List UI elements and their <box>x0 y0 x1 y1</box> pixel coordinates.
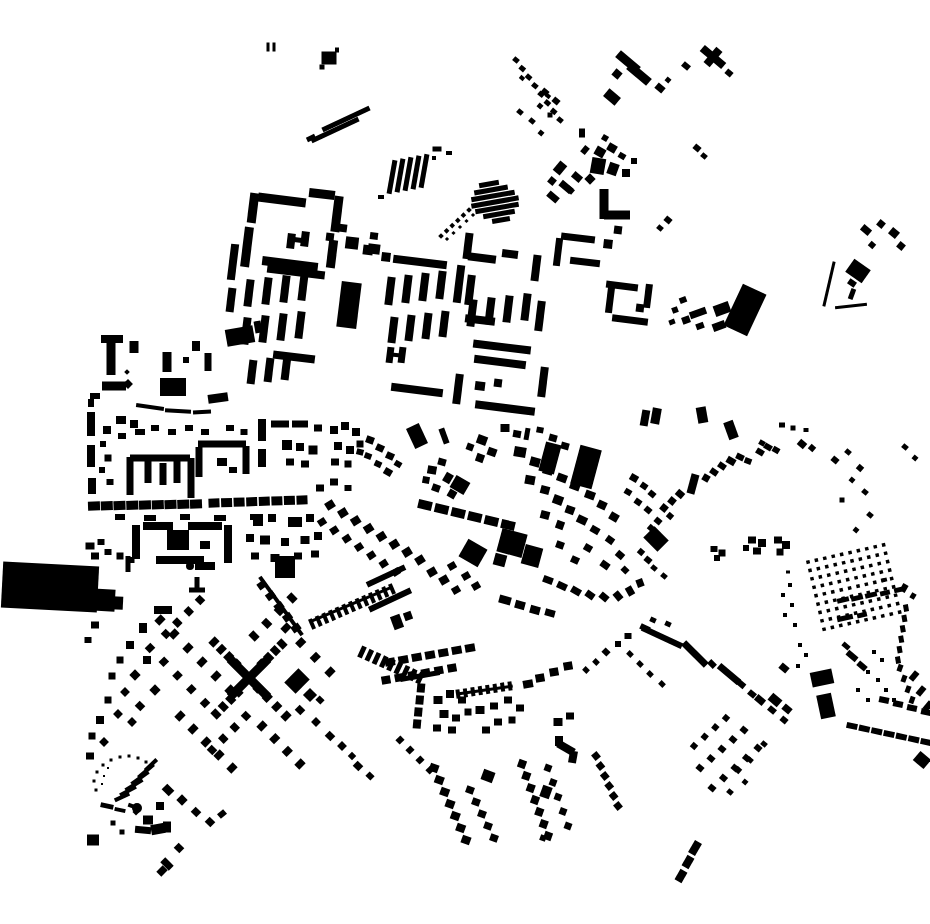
building-footprint <box>465 709 472 716</box>
building-footprint <box>282 440 292 450</box>
building-footprint <box>154 606 172 614</box>
building-footprint <box>364 452 373 460</box>
building-footprint <box>741 778 748 785</box>
building-footprint <box>690 742 698 750</box>
building-footprint <box>190 499 202 508</box>
building-footprint <box>460 835 471 846</box>
building-footprint <box>345 461 352 468</box>
building-footprint <box>620 565 629 574</box>
building-footprint <box>129 669 140 680</box>
building-footprint <box>306 514 314 522</box>
building-footprint <box>452 715 460 722</box>
building-footprint <box>107 479 114 485</box>
building-footprint <box>844 448 852 456</box>
building-footprint <box>848 476 855 483</box>
building-footprint <box>188 522 222 530</box>
building-footprint <box>537 129 544 136</box>
building-footprint <box>816 693 836 720</box>
building-footprint-round <box>186 562 194 570</box>
building-footprint <box>707 659 717 669</box>
building-footprint <box>415 695 424 705</box>
building-footprint <box>281 538 289 546</box>
building-footprint <box>243 446 250 474</box>
building-footprint <box>195 595 206 606</box>
building-footprint <box>679 296 688 304</box>
building-footprint <box>475 453 485 463</box>
building-footprint <box>163 822 171 833</box>
building-footprint <box>357 646 367 659</box>
building-footprint <box>398 655 409 665</box>
building-footprint <box>878 696 889 704</box>
building-footprint <box>639 482 648 491</box>
building-footprint <box>596 499 608 510</box>
building-footprint <box>877 561 881 565</box>
building-footprint <box>415 755 424 764</box>
building-footprint <box>139 623 147 633</box>
building-footprint <box>189 588 205 593</box>
building-footprint <box>113 501 125 510</box>
building-footprint <box>435 271 446 300</box>
building-footprint <box>324 499 336 511</box>
building-footprint <box>286 459 294 466</box>
building-footprint <box>309 446 318 455</box>
building-footprint <box>317 517 328 527</box>
building-footprint <box>712 320 727 332</box>
building-footprint <box>711 723 719 731</box>
building-footprint <box>101 783 103 785</box>
building-footprint <box>446 151 452 155</box>
building-footprint <box>196 447 203 477</box>
building-footprint <box>612 590 623 601</box>
building-footprint <box>709 467 719 477</box>
building-footprint <box>210 670 221 681</box>
building-footprint <box>900 675 907 683</box>
building-footprint <box>124 369 130 375</box>
building-footprint <box>861 488 869 496</box>
building-footprint <box>309 188 336 200</box>
building-footprint <box>826 608 830 612</box>
building-footprint <box>873 545 877 549</box>
building-footprint <box>711 546 718 552</box>
building-footprint <box>135 429 145 435</box>
building-footprint <box>520 293 531 321</box>
building-footprint <box>571 171 583 183</box>
building-footprint <box>536 426 544 433</box>
building-footprint <box>858 557 862 561</box>
building-footprint <box>466 443 475 452</box>
building-footprint <box>601 134 609 142</box>
building-footprint <box>848 586 852 590</box>
building-footprint <box>413 719 422 729</box>
building-footprint <box>445 237 449 241</box>
building-footprint <box>860 565 864 569</box>
building-footprint <box>485 685 490 694</box>
building-footprint <box>516 705 524 712</box>
building-footprint <box>301 536 310 544</box>
building-footprint <box>450 811 461 822</box>
building-footprint <box>296 443 304 451</box>
building-footprint <box>348 752 356 760</box>
building-footprint <box>687 473 700 494</box>
building-footprint <box>431 483 441 492</box>
building-footprint <box>437 458 447 467</box>
building-footprint <box>783 613 787 617</box>
building-footprint <box>781 593 785 597</box>
building-footprint <box>617 152 626 161</box>
building-footprint <box>494 719 502 726</box>
building-footprint <box>675 869 688 883</box>
building-footprint <box>270 645 281 656</box>
building-footprint <box>478 686 483 695</box>
building-footprint <box>115 514 125 520</box>
building-footprint <box>271 701 282 712</box>
building-footprint <box>544 764 553 773</box>
building-footprint <box>434 696 443 704</box>
building-footprint <box>631 158 637 164</box>
building-footprint <box>758 539 766 547</box>
building-footprint <box>329 525 340 535</box>
building-footprint <box>551 96 560 105</box>
building-footprint <box>357 441 364 448</box>
building-footprint <box>240 227 254 268</box>
building-footprint <box>767 705 777 715</box>
building-footprint <box>544 608 555 617</box>
building-footprint <box>475 400 536 415</box>
building-footprint <box>728 735 737 744</box>
building-footprint <box>172 670 183 681</box>
building-footprint <box>463 688 468 697</box>
building-footprint <box>160 463 167 485</box>
building-footprint <box>502 295 513 323</box>
building-footprint <box>260 536 270 545</box>
building-footprint <box>490 703 498 710</box>
building-footprint <box>701 473 711 483</box>
building-footprint <box>87 445 95 467</box>
building-footprint <box>280 622 291 633</box>
building-footprint <box>739 725 748 734</box>
building-footprint <box>471 213 475 217</box>
building-footprint <box>522 679 533 689</box>
building-footprint <box>584 173 595 184</box>
building-footprint <box>827 573 831 577</box>
building-footprint <box>852 526 859 533</box>
building-footprint <box>810 668 835 687</box>
building-footprint <box>808 568 812 572</box>
building-footprint <box>539 785 553 800</box>
building-footprint <box>461 571 471 581</box>
building-footprint <box>856 688 860 692</box>
building-footprint <box>227 244 239 281</box>
building-footprint <box>102 382 126 391</box>
building-footprint <box>870 607 874 611</box>
building-footprint <box>411 652 422 662</box>
building-footprint <box>908 735 920 743</box>
building-footprint <box>717 744 726 753</box>
building-footprint <box>465 785 475 794</box>
building-footprint <box>548 434 558 443</box>
building-footprint <box>95 789 98 792</box>
building-footprint <box>650 407 662 424</box>
building-footprint <box>145 461 152 483</box>
building-footprint <box>583 543 593 553</box>
building-footprint <box>458 225 462 229</box>
building-footprint <box>664 76 671 83</box>
building-footprint <box>667 496 677 506</box>
building-footprint <box>653 516 662 525</box>
building-footprint <box>814 558 818 562</box>
building-footprint <box>107 767 109 769</box>
building-footprint <box>549 667 559 676</box>
building-footprint <box>530 795 540 805</box>
building-footprint <box>837 579 841 583</box>
building-footprint <box>350 515 362 527</box>
building-footprint <box>516 108 524 116</box>
building-footprint <box>143 656 151 664</box>
building-footprint <box>920 738 930 746</box>
building-footprint <box>615 550 626 561</box>
building-footprint <box>793 623 797 627</box>
building-footprint <box>486 447 497 458</box>
building-footprint <box>149 684 160 695</box>
building-footprint <box>519 75 525 81</box>
building-footprint <box>647 489 656 498</box>
building-footprint <box>174 710 185 721</box>
building-footprint <box>294 758 305 769</box>
building-footprint <box>438 233 444 239</box>
building-footprint <box>326 233 335 242</box>
building-footprint <box>823 556 827 560</box>
building-footprint <box>471 797 481 806</box>
building-footprint <box>174 843 185 854</box>
building-footprint <box>438 648 449 658</box>
building-footprint <box>113 709 123 719</box>
building-footprint <box>529 605 541 615</box>
building-footprint <box>613 801 623 811</box>
building-footprint <box>877 597 881 601</box>
building-footprint <box>225 325 256 347</box>
building-footprint <box>111 821 116 826</box>
building-footprint <box>822 627 826 631</box>
building-footprint <box>909 592 916 600</box>
building-footprint <box>782 541 790 549</box>
building-footprint <box>200 541 210 549</box>
building-footprint <box>866 698 870 702</box>
building-footprint <box>145 643 156 654</box>
building-footprint <box>530 255 541 282</box>
building-footprint <box>107 341 116 375</box>
building-footprint <box>364 649 374 662</box>
building-footprint <box>504 697 512 704</box>
building-footprint <box>563 661 573 670</box>
building-footprint <box>385 451 395 461</box>
building-footprint <box>224 525 232 563</box>
building-footprint <box>418 273 429 302</box>
building-footprint <box>210 708 221 719</box>
building-footprint <box>424 650 435 660</box>
building-footprint <box>474 355 527 369</box>
building-footprint <box>100 802 114 810</box>
building-footprint <box>200 736 211 747</box>
building-footprint <box>120 830 125 835</box>
building-footprint <box>261 277 272 305</box>
building-footprint <box>682 855 695 869</box>
building-footprint <box>447 561 457 571</box>
building-footprint <box>218 733 229 744</box>
building-footprint <box>145 761 148 764</box>
building-footprint <box>553 238 563 267</box>
building-footprint <box>226 288 237 313</box>
building-footprint <box>797 439 808 450</box>
building-footprint <box>790 603 794 607</box>
building-footprint <box>226 762 237 773</box>
building-footprint <box>110 759 113 762</box>
building-footprint <box>526 783 536 793</box>
building-footprint <box>484 515 500 527</box>
building-footprint <box>872 616 876 620</box>
building-footprint <box>135 701 146 712</box>
building-footprint <box>535 673 545 682</box>
building-footprint <box>276 313 287 341</box>
building-footprint <box>352 428 360 436</box>
building-footprint <box>120 687 130 697</box>
building-footprint <box>126 501 138 510</box>
building-footprint <box>603 239 613 249</box>
building-footprint <box>99 737 109 747</box>
building-footprint <box>895 656 901 664</box>
building-footprint <box>806 560 810 564</box>
building-footprint <box>168 429 176 435</box>
building-footprint <box>258 315 269 343</box>
building-footprint <box>818 610 822 614</box>
building-footprint <box>177 500 189 509</box>
building-footprint <box>345 485 352 491</box>
building-footprint <box>247 193 260 224</box>
building-footprint <box>719 773 728 782</box>
building-footprint <box>901 615 907 623</box>
building-footprint <box>127 457 134 495</box>
building-footprint <box>890 576 894 580</box>
building-footprint <box>246 534 254 542</box>
building-footprint <box>90 393 100 399</box>
building-footprint <box>559 807 568 816</box>
building-footprint <box>637 548 645 556</box>
building-footprint <box>271 496 282 505</box>
building-footprint <box>582 666 590 674</box>
building-footprint <box>88 399 94 407</box>
building-footprint <box>273 350 316 363</box>
building-footprint <box>394 673 404 682</box>
building-footprint <box>566 713 574 720</box>
building-footprint <box>700 152 708 160</box>
building-footprint <box>896 602 900 606</box>
building-footprint <box>151 425 159 431</box>
building-footprint <box>205 353 212 371</box>
building-footprint <box>643 284 653 309</box>
building-footprint <box>451 645 462 655</box>
building-footprint <box>126 641 134 649</box>
building-footprint <box>723 420 739 440</box>
building-footprint <box>268 514 276 522</box>
building-footprint <box>606 162 620 177</box>
building-footprint <box>524 475 535 486</box>
building-footprint <box>546 190 560 203</box>
building-footprint <box>87 835 99 846</box>
building-footprint <box>401 275 412 304</box>
building-footprint <box>295 637 306 648</box>
building-footprint <box>771 446 780 455</box>
building-footprint <box>589 525 600 536</box>
building-footprint <box>494 379 503 388</box>
building-footprint <box>258 419 266 441</box>
building-footprint <box>717 461 727 471</box>
building-footprint <box>322 52 337 65</box>
building-footprint <box>433 725 441 732</box>
building-footprint <box>866 670 870 674</box>
building-footprint <box>612 314 649 325</box>
building-footprint <box>482 727 490 734</box>
building-footprint <box>564 505 575 516</box>
building-footprint <box>218 701 229 712</box>
building-footprint <box>552 494 564 506</box>
building-footprint <box>193 410 211 415</box>
building-footprint <box>446 690 454 698</box>
building-footprint <box>346 446 354 454</box>
building-footprint <box>87 412 95 436</box>
building-footprint <box>493 553 508 568</box>
building-footprint <box>353 761 364 772</box>
building-footprint <box>393 255 448 270</box>
building-footprint <box>381 252 391 262</box>
building-footprint <box>850 559 854 563</box>
building-footprint <box>297 273 308 301</box>
building-footprint <box>247 360 258 385</box>
building-footprint <box>540 510 551 520</box>
building-footprint <box>591 751 601 761</box>
building-footprint <box>471 581 481 591</box>
building-footprint <box>500 682 505 691</box>
building-footprint <box>858 725 870 733</box>
building-footprint <box>405 745 414 754</box>
building-footprint <box>417 499 433 511</box>
building-footprint <box>186 684 197 695</box>
building-footprint <box>241 429 248 435</box>
building-footprint <box>331 459 339 466</box>
building-footprint <box>233 497 244 506</box>
building-footprint <box>869 563 873 567</box>
building-footprint <box>286 592 297 603</box>
building-footprint <box>635 578 644 588</box>
building-footprint <box>884 551 888 555</box>
building-footprint <box>144 515 156 521</box>
building-footprint <box>636 304 645 313</box>
building-footprint <box>555 540 565 549</box>
building-footprint <box>879 605 883 609</box>
building-footprint <box>895 733 907 741</box>
building-footprint <box>119 756 122 759</box>
building-footprint <box>139 500 151 509</box>
building-footprint <box>692 143 701 152</box>
building-footprint <box>876 219 886 229</box>
building-footprint <box>534 807 544 817</box>
building-footprint <box>649 616 657 623</box>
building-footprint <box>796 664 800 668</box>
building-footprint <box>221 498 232 507</box>
building-footprint <box>448 727 456 734</box>
building-footprint <box>451 585 461 595</box>
building-footprint <box>378 559 389 569</box>
building-footprint <box>356 448 364 456</box>
building-footprint <box>295 705 306 716</box>
